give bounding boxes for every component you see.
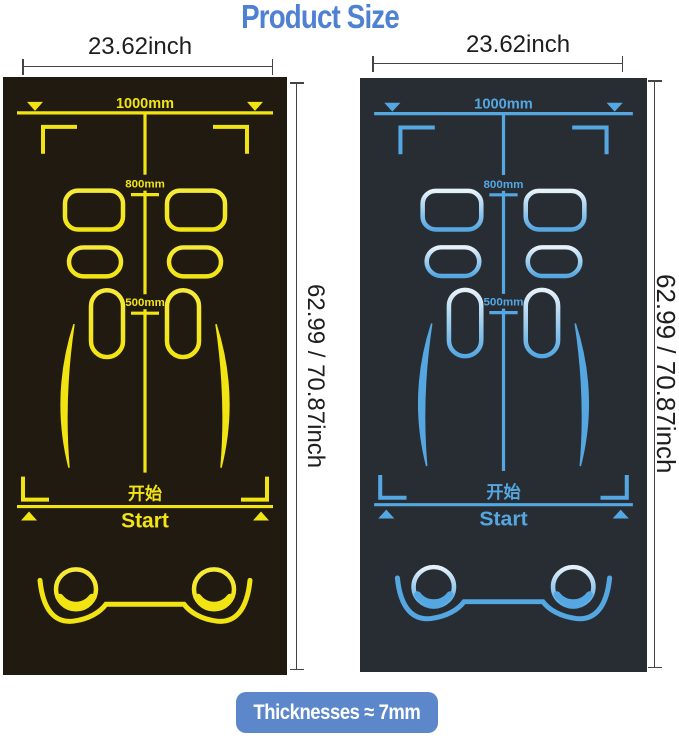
start-marking-cn: 开始 — [486, 482, 520, 502]
marking-800mm: 800mm — [483, 179, 523, 191]
width-dimension-line — [372, 63, 623, 64]
blue-mat-assembly: 23.62inch 1000mm 800mm 500mm — [0, 0, 679, 740]
blue-mat: 1000mm 800mm 500mm 开始 Start — [360, 78, 647, 672]
mat-width-marking: 1000mm — [474, 97, 533, 113]
height-label: 62.99 / 70.87inch — [656, 78, 679, 740]
width-label: 23.62inch — [408, 31, 628, 59]
thickness-badge-label: Thicknesses ≈ 7mm — [253, 701, 420, 725]
start-marking-en: Start — [479, 508, 527, 531]
thickness-badge: Thicknesses ≈ 7mm — [236, 692, 438, 733]
marking-500mm: 500mm — [483, 297, 523, 309]
product-size-page: Product Size 23.62inch 1000mm 800mm 500m… — [0, 0, 679, 740]
